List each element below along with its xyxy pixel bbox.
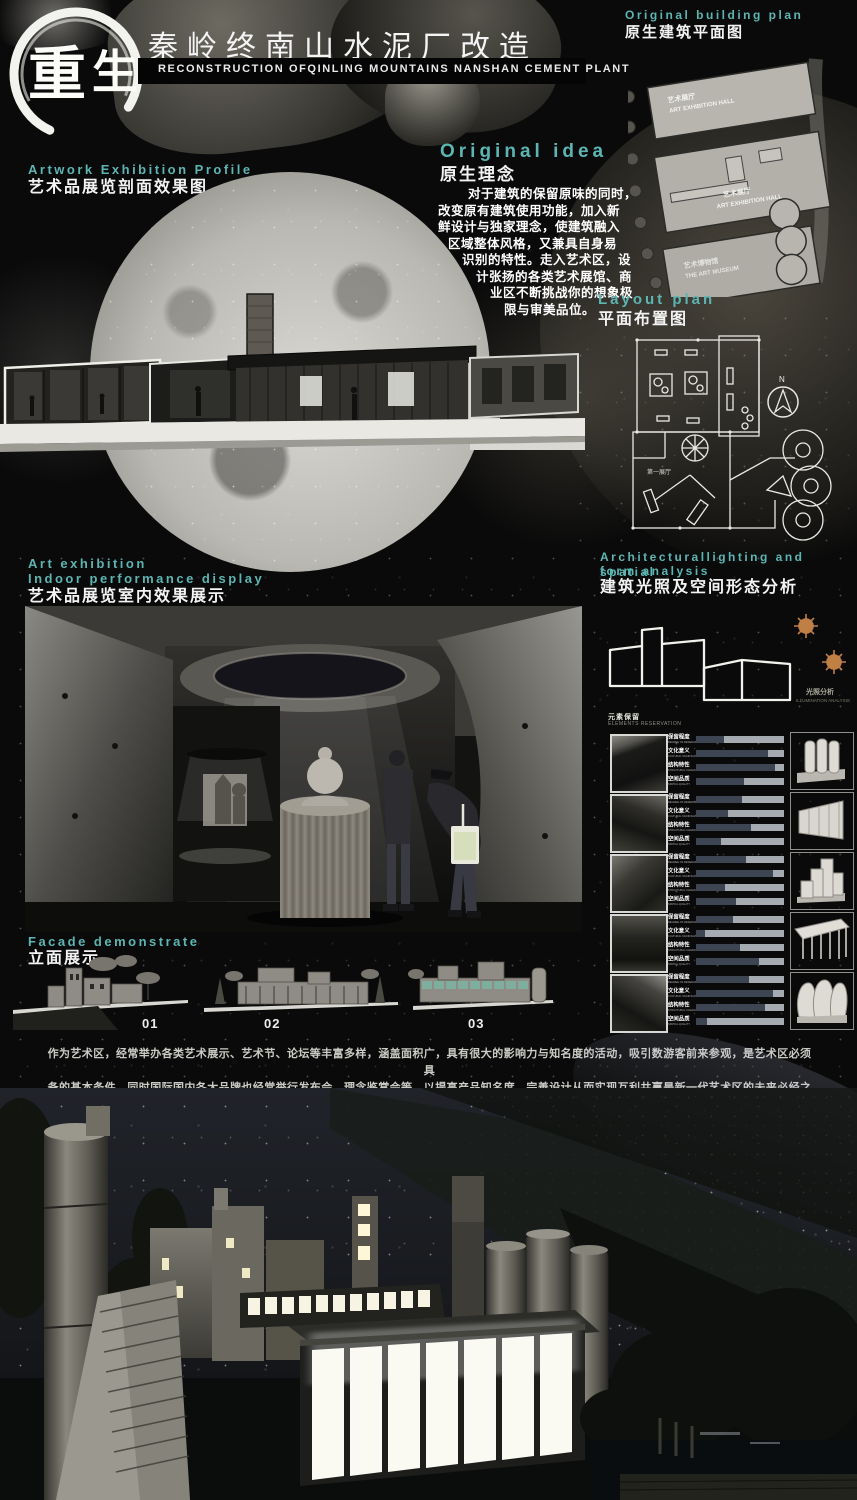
analysis-bar-fill — [728, 810, 784, 817]
analysis-bar-fill — [721, 838, 784, 845]
bar-label-en: CULTURAL SIGNIFICANCE — [668, 755, 685, 758]
section-heading-lighting-en2: form analysis — [600, 564, 710, 579]
analysis-bar-fill — [765, 1004, 784, 1011]
logo-char-2: 生 — [92, 46, 138, 98]
bar-label-en: STRUCTURAL CHARACTER — [668, 1009, 685, 1012]
analysis-bar-fill — [744, 778, 784, 785]
bar-label: 结构特性STRUCTURAL CHARACTER — [668, 883, 694, 893]
analysis-bar — [696, 944, 784, 951]
analysis-bar-fill — [768, 750, 784, 757]
analysis-bar — [696, 824, 784, 831]
bar-label-en: SPATIAL QUALITY — [668, 783, 685, 786]
bar-label-en: CULTURAL SIGNIFICANCE — [668, 815, 685, 818]
analysis-photo — [610, 914, 668, 973]
analysis-bar-fill — [751, 824, 784, 831]
bar-label: 结构特性STRUCTURAL CHARACTER — [668, 1003, 694, 1013]
lighting-caption-en: ILLUMINATION ANALYSIS — [796, 698, 850, 703]
analysis-bar-fill — [740, 944, 784, 951]
night-render — [0, 1088, 857, 1500]
section-heading-art-exhibition-en1: Art exhibition — [28, 556, 147, 571]
analysis-bar — [696, 990, 784, 997]
analysis-bar — [696, 856, 784, 863]
analysis-bar — [696, 916, 784, 923]
analysis-bar-fill — [733, 916, 784, 923]
bar-label: 空间品质SPATIAL QUALITY — [668, 777, 694, 787]
analysis-bar — [696, 750, 784, 757]
facade-number: 01 — [142, 1016, 158, 1031]
room-label: 第一展厅 — [647, 468, 671, 476]
form-box-stepped-hall — [790, 852, 854, 910]
section-heading-artwork-profile-cn: 艺术品展览剖面效果图 — [28, 178, 208, 197]
analysis-bar — [696, 976, 784, 983]
facade-number: 03 — [468, 1016, 484, 1031]
idea-line: 鲜设计与独家理念，使建筑融入 — [438, 219, 666, 236]
bar-label: 文化意义CULTURAL SIGNIFICANCE — [668, 989, 694, 999]
presentation-board: 重 生 秦岭终南山水泥厂改造 RECONSTRUCTION OFQINLING … — [0, 0, 857, 1500]
analysis-photo — [610, 734, 668, 793]
bar-label-en: DEGREE OF RESERVATION — [668, 861, 685, 864]
analysis-bar — [696, 810, 784, 817]
logo-char-1: 重 — [28, 42, 86, 107]
form-box-silo-cluster — [790, 732, 854, 790]
bar-label-en: SPATIAL QUALITY — [668, 903, 685, 906]
analysis-bar — [696, 958, 784, 965]
bar-label: 保留程度DEGREE OF RESERVATION — [668, 795, 694, 805]
lighting-caption-cn: 光照分析 — [805, 687, 834, 696]
bar-label: 结构特性STRUCTURAL CHARACTER — [668, 943, 694, 953]
bar-label-en: STRUCTURAL CHARACTER — [668, 829, 685, 832]
section-heading-art-exhibition-cn: 艺术品展览室内效果展示 — [28, 587, 226, 606]
idea-line: 改变原有建筑使用功能，加入新 — [438, 203, 666, 220]
bar-label-en: CULTURAL SIGNIFICANCE — [668, 935, 685, 938]
idea-line: 计张扬的各类艺术展馆、商 — [438, 269, 666, 286]
analysis-bar-fill — [775, 764, 784, 771]
idea-line: 对于建筑的保留原味的同时， — [438, 186, 666, 203]
north-label: N — [779, 375, 785, 384]
analysis-bar — [696, 1004, 784, 1011]
bar-label: 保留程度DEGREE OF RESERVATION — [668, 975, 694, 985]
bar-label: 空间品质SPATIAL QUALITY — [668, 897, 694, 907]
bar-label-en: CULTURAL SIGNIFICANCE — [668, 875, 685, 878]
layout-plan-drawing: N 第一展厅 — [595, 330, 857, 542]
analysis-bar-fill — [759, 958, 784, 965]
section-heading-original-plan-cn: 原生建筑平面图 — [625, 23, 744, 42]
bar-label-en: DEGREE OF RESERVATION — [668, 801, 685, 804]
main-title-en: RECONSTRUCTION OFQINLING MOUNTAINS NANSH… — [158, 63, 630, 75]
section-heading-artwork-profile-en: Artwork Exhibition Profile — [28, 162, 253, 177]
analysis-bar-fill — [773, 870, 784, 877]
facade-numbers: 010203 — [0, 1016, 857, 1036]
analysis-bar-fill — [746, 856, 784, 863]
analysis-bar — [696, 870, 784, 877]
analysis-bar — [696, 736, 784, 743]
bar-label-en: STRUCTURAL CHARACTER — [668, 769, 685, 772]
analysis-bar — [696, 764, 784, 771]
analysis-bar — [696, 796, 784, 803]
bar-label: 保留程度DEGREE OF RESERVATION — [668, 735, 694, 745]
bar-label-en: DEGREE OF RESERVATION — [668, 921, 685, 924]
analysis-bar-fill — [736, 898, 784, 905]
section-heading-layout-cn: 平面布置图 — [598, 310, 688, 329]
section-heading-lighting-cn: 建筑光照及空间形态分析 — [600, 578, 798, 597]
analysis-bar — [696, 838, 784, 845]
bar-label: 空间品质SPATIAL QUALITY — [668, 837, 694, 847]
section-heading-idea-cn: 原生理念 — [440, 165, 516, 184]
interior-render — [25, 606, 582, 932]
analysis-bar-fill — [705, 930, 784, 937]
rebirth-logo: 重 生 — [4, 2, 149, 147]
bar-label-en: DEGREE OF RESERVATION — [668, 981, 685, 984]
section-heading-idea-en: Original idea — [440, 144, 607, 159]
analysis-photo — [610, 794, 668, 853]
form-box-tapered-hall — [790, 792, 854, 850]
analysis-bar — [696, 884, 784, 891]
analysis-bar-fill — [742, 796, 784, 803]
bar-label: 空间品质SPATIAL QUALITY — [668, 957, 694, 967]
analysis-bar-fill — [724, 736, 784, 743]
bar-label-en: SPATIAL QUALITY — [668, 963, 685, 966]
section-heading-art-exhibition-en2: Indoor performance display — [28, 571, 264, 586]
idea-line: 识别的特性。走入艺术区，设 — [438, 252, 666, 269]
bar-label: 结构特性STRUCTURAL CHARACTER — [668, 763, 694, 773]
analysis-bar-fill — [725, 884, 784, 891]
bar-label-en: DEGREE OF RESERVATION — [668, 741, 685, 744]
analysis-photo — [610, 854, 668, 913]
bar-label: 保留程度DEGREE OF RESERVATION — [668, 915, 694, 925]
analysis-bar-fill — [773, 990, 784, 997]
facade-number: 02 — [264, 1016, 280, 1031]
bar-label-en: STRUCTURAL CHARACTER — [668, 949, 685, 952]
form-box-canopy-structure — [790, 912, 854, 970]
bar-label: 保留程度DEGREE OF RESERVATION — [668, 855, 694, 865]
analysis-bar — [696, 930, 784, 937]
bar-label: 文化意义CULTURAL SIGNIFICANCE — [668, 749, 694, 759]
bar-label: 结构特性STRUCTURAL CHARACTER — [668, 823, 694, 833]
bar-label-en: CULTURAL SIGNIFICANCE — [668, 995, 685, 998]
bar-label-en: STRUCTURAL CHARACTER — [668, 889, 685, 892]
analysis-bar — [696, 778, 784, 785]
section-heading-original-plan-en: Original building plan — [625, 8, 803, 23]
bar-label: 文化意义CULTURAL SIGNIFICANCE — [668, 929, 694, 939]
lighting-diagram: 光照分析 ILLUMINATION ANALYSIS — [600, 610, 857, 708]
analysis-bar — [696, 898, 784, 905]
idea-line: 区域整体风格，又兼具自身易 — [438, 236, 666, 253]
bar-label: 文化意义CULTURAL SIGNIFICANCE — [668, 869, 694, 879]
section-heading-layout-en: Layout plan — [598, 292, 715, 307]
section-heading-facade-en: Facade demonstrate — [28, 934, 199, 949]
bar-label-en: SPATIAL QUALITY — [668, 843, 685, 846]
bar-label: 文化意义CULTURAL SIGNIFICANCE — [668, 809, 694, 819]
analysis-bar-fill — [749, 976, 784, 983]
